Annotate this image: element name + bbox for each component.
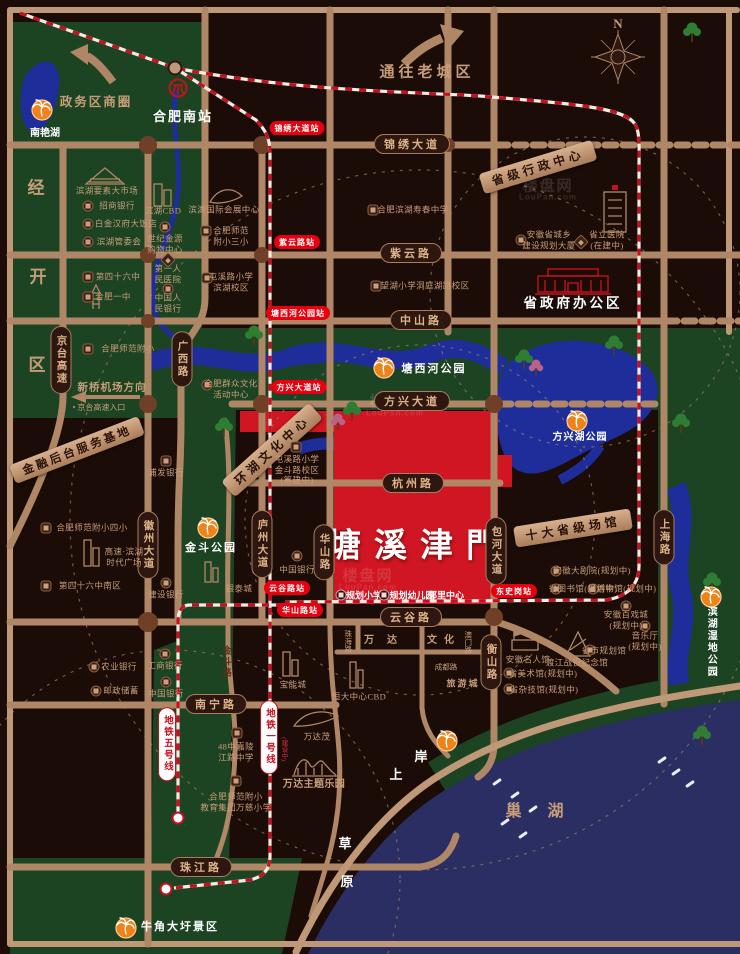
- park-shidi: 滨湖湿地公园: [704, 606, 717, 678]
- wanda-char-wen: 文: [427, 635, 437, 648]
- poi-shidai: 高速·滨湖 时代广场: [105, 546, 144, 567]
- poi-wanghu: 望湖小学洞庭湖路校区: [380, 281, 469, 292]
- wanda-lvyoucheng: 旅游城: [446, 678, 479, 689]
- poi-dajuyuan: 安徽大剧院(规划中): [553, 566, 631, 577]
- road-label-zhongshan: 中山路: [390, 310, 452, 330]
- poi-baijin: 白金汉府大饭店: [95, 219, 157, 230]
- road-label-jindoulu: 金斗路: [220, 646, 231, 679]
- road-label-hengshan: 衡山路: [481, 634, 502, 690]
- zone-kai: 开: [30, 266, 47, 287]
- mingren-hall-icon: [512, 640, 538, 650]
- poi-zaji: 省杂技馆(规划中): [510, 685, 579, 696]
- poi-guihuaguan: 省市规划馆: [582, 646, 627, 657]
- road-label-zhujiang: 珠江路: [170, 857, 232, 877]
- park-tangxihe: 塘西河公园: [402, 363, 467, 377]
- map-graphics: [0, 0, 740, 954]
- shore-char-yuan: 原: [340, 874, 353, 890]
- school48-icon: [232, 728, 243, 739]
- wanci-school-icon: [231, 776, 242, 787]
- poi-wandale: 万达主题乐园: [283, 779, 345, 792]
- poi-baoneng: 宝能城: [280, 680, 307, 691]
- poi-wanci: 合肥师范附小 教育集团万慈小学: [200, 791, 271, 812]
- jinyuan-mall-icon: [160, 222, 171, 233]
- planned-school-label: 规划小学: [346, 590, 382, 601]
- shore-char-cao: 草: [338, 836, 351, 852]
- shore-char-an: 岸: [414, 749, 427, 765]
- poi-wandamao: 万达茂: [304, 732, 331, 743]
- fuxiao4-school-icon: [41, 523, 52, 534]
- station-fangxing: 方兴大道站: [272, 380, 327, 394]
- poi-huizhan: 滨湖国际会展中心: [188, 205, 259, 216]
- road-label-yungu: 云谷路: [380, 607, 442, 627]
- poi-jinyuan: 世纪金源 购物中心: [147, 233, 183, 254]
- zone-zhengwu: 政务区商圈: [60, 95, 133, 111]
- highway-entry-label: • 京台高速入口: [73, 403, 126, 413]
- poi-yinyue: 音乐厅 (规划中): [628, 630, 661, 651]
- coaster-icon: [292, 760, 338, 776]
- project-name: 塘溪津門: [328, 526, 512, 567]
- youzheng-icon: [91, 686, 102, 697]
- gov-building-icon: [535, 269, 611, 294]
- street-zhuhai: 珠海路: [343, 630, 352, 653]
- station-jinxiu: 锦绣大道站: [270, 121, 325, 135]
- jindou-park-icon: [198, 518, 218, 538]
- road-label-baohe: 包河大道: [486, 517, 507, 585]
- poi-tunxi1: 屯溪路小学 滨湖校区: [209, 271, 254, 292]
- road-label-hangzhou: 杭州路: [382, 473, 444, 493]
- hotel-icon: [83, 219, 94, 230]
- wanda-char-wan: 万: [364, 635, 374, 648]
- wanda-char-hua: 化: [444, 635, 454, 648]
- niujiao-park-icon: [116, 918, 136, 938]
- shore-park-icon: [437, 731, 457, 751]
- metro-line1-note: (建设中): [278, 737, 288, 761]
- hengda-icon: [350, 662, 356, 688]
- di46nan-school-icon: [41, 581, 52, 592]
- fuxiao-school-icon: [83, 344, 94, 355]
- road-label-fangxing: 方兴大道: [374, 391, 450, 411]
- poi-yizhong: 合肥一中: [95, 292, 131, 303]
- hefei-south-station-label: 合肥南站: [153, 109, 213, 125]
- poi-fuxiao: 合肥师范附小: [101, 344, 154, 355]
- road-label-huashan: 华山路: [314, 524, 335, 580]
- baoneng-icon: [283, 652, 290, 676]
- poi-di46nan: 第四十六中南区: [59, 581, 121, 592]
- wanda-char-da: 达: [387, 635, 397, 648]
- watermark: 楼盘网LouPan.com: [519, 179, 577, 202]
- shore-char-shang: 上: [389, 767, 402, 783]
- zgyh-left-bank-icon: [161, 677, 172, 688]
- poi-hengda: 恒大中心CBD: [332, 692, 386, 703]
- jianshe-bank-icon: [161, 578, 172, 589]
- poi-renyi: 第一人 民医院: [155, 263, 182, 284]
- poi-cbd: 滨湖CBD: [145, 206, 181, 217]
- poi-zgyh-left: 中国银行: [148, 689, 184, 700]
- street-chengdu: 成都路: [435, 662, 458, 671]
- road-label-ziyun: 紫云路: [380, 243, 442, 263]
- fangxinghu-park-icon: [567, 411, 587, 431]
- poi-guihuadasha: 安徽省城乡 建设规划大厦: [522, 229, 575, 250]
- zone-laochengqu: 通往老城区: [379, 64, 474, 83]
- poi-renyin: 中国人 民银行: [155, 292, 182, 313]
- old-town-arrow-icon: [440, 24, 464, 50]
- poi-gongshang: 工商银行: [147, 661, 183, 672]
- compass-icon: [591, 30, 645, 84]
- di46-school-icon: [83, 272, 94, 283]
- tunxi2-school-icon: [291, 442, 302, 453]
- park-nanyanhu: 南艳湖: [30, 128, 60, 141]
- tangxihe-park-icon: [374, 358, 394, 378]
- poi-shengli: 省立医院 (在建中): [589, 229, 625, 250]
- road-label-shanghai: 上海路: [654, 509, 675, 565]
- road-label-huizhou: 徽州大道: [138, 511, 159, 579]
- poi-guanwei: 滨湖管委会: [97, 237, 142, 248]
- times-square-icon: [84, 540, 91, 566]
- poi-tunxi2: 屯溪路小学 金斗路校区 (筹建中): [275, 454, 320, 486]
- chaohu-lake-label: 巢 湖: [505, 802, 574, 822]
- poi-youzheng: 邮政储蓄: [103, 686, 139, 697]
- road-label-jinxiu: 锦绣大道: [374, 134, 450, 154]
- fuxiao3-school-icon: [201, 226, 212, 237]
- poi-fuxiao4: 合肥师范附小四小: [56, 523, 127, 534]
- metro-line1-label: 地铁一号线: [260, 700, 278, 774]
- gov-office-zone-label: 省政府办公区: [524, 296, 623, 313]
- nongye-bank-icon: [89, 662, 100, 673]
- location-map: 楼盘网LouPan.com 楼盘网LouPan.com 楼盘网LouPan.co…: [0, 0, 740, 954]
- poi-pufa: 浦发银行: [148, 468, 184, 479]
- poi-yaosu: 滨湖要素大市场: [76, 186, 138, 197]
- shidi-park-icon: [701, 587, 721, 607]
- zhaoshang-bank-icon: [83, 201, 94, 212]
- station-dongshigang: 东史岗站: [491, 584, 537, 598]
- gongshang-bank-icon: [160, 649, 171, 660]
- watermark: 楼盘网LouPan.com: [339, 569, 397, 592]
- poi-zhaoshang: 招商银行: [99, 201, 135, 212]
- wetland-river: [676, 486, 683, 684]
- planned-school-icon: [336, 590, 347, 601]
- station-yungu: 云谷路站: [264, 581, 310, 595]
- road-label-luzhou: 庐州大道: [252, 510, 273, 578]
- yizhong-school-icon: [83, 292, 94, 303]
- road-label-guangxi: 广西路: [172, 331, 193, 387]
- poi-fuxiao3: 合肥师范 附小三小: [213, 225, 249, 246]
- pufa-bank-icon: [161, 456, 172, 467]
- station-huashan: 华山路站: [277, 603, 323, 617]
- poi-zgyh-mid: 中国银行: [279, 565, 315, 576]
- park-fangxinghu: 方兴湖公园: [553, 432, 608, 445]
- poi-yintai: 银泰城: [226, 584, 253, 595]
- street-aomen: 澳门路: [463, 631, 472, 654]
- poi-jianshe: 建设银行: [148, 590, 184, 601]
- airport-direction-label: 新桥机场方向: [78, 381, 147, 394]
- planned-kindergarten-icon: [379, 590, 390, 601]
- poi-di46: 第四十六中: [96, 272, 141, 283]
- zgyh-mid-bank-icon: [292, 551, 303, 562]
- road-label-jingtai: 京台高速: [51, 326, 72, 394]
- poi-bowuguan: 省博物馆(规划中): [588, 584, 657, 595]
- poi-baixi: 安徽百戏城 (规划中): [604, 609, 649, 630]
- community-center-label: 邻里中心: [428, 590, 464, 601]
- station-ziyun: 紫云路站: [274, 235, 320, 249]
- nanyanhu-park-icon: [32, 100, 52, 120]
- poi-mingren: 安徽名人馆: [506, 655, 551, 666]
- zone-jing: 经: [28, 177, 45, 198]
- poi-qunzhong: 合肥群众文化 活动中心: [204, 378, 257, 399]
- wandamao-icon: [294, 712, 338, 726]
- compass-n-label: N: [613, 16, 622, 32]
- station-tangxihe: 塘西河公园站: [266, 306, 330, 320]
- park-niujiao: 牛角大圩景区: [141, 921, 219, 935]
- poi-meishu: 省美术馆(规划中): [509, 669, 578, 680]
- guanweihui-icon: [83, 237, 94, 248]
- hospital-tower-icon: [604, 192, 626, 232]
- poi-dujiang: 渡江战役纪念馆: [546, 658, 608, 669]
- poi-nongye: 农业银行: [101, 662, 137, 673]
- park-jindou: 金斗公园: [185, 542, 237, 556]
- poi-school48: 48中嘉陵 江路中学: [218, 741, 254, 762]
- metro-line5-label: 地铁五号线: [158, 707, 176, 781]
- zone-qu: 区: [29, 354, 46, 375]
- exhibition-center-icon: [210, 190, 242, 203]
- road-label-nanning: 南宁路: [185, 694, 247, 714]
- poi-shouchun: 合肥滨湖寿春中学: [377, 205, 448, 216]
